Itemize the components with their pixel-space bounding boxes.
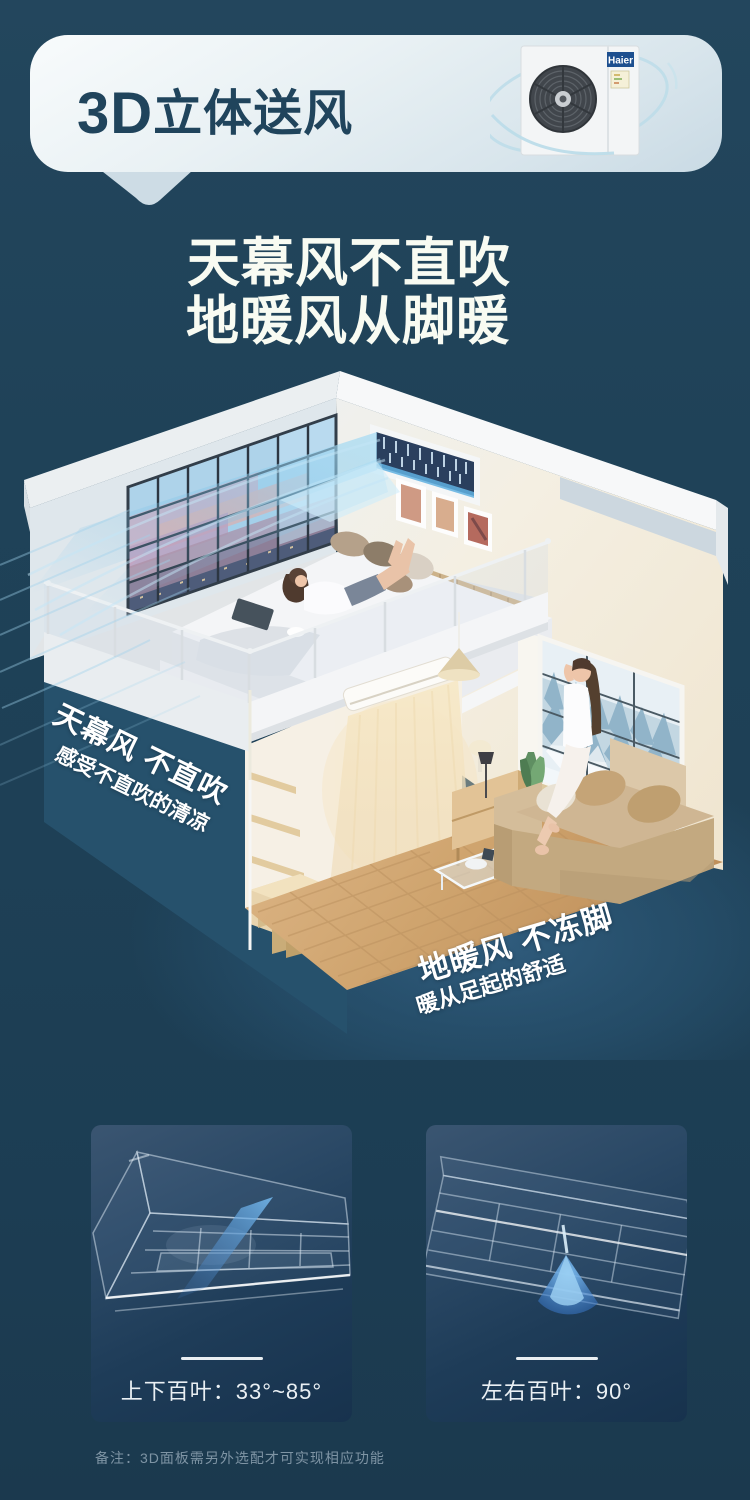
- svg-text:Haier: Haier: [608, 56, 633, 67]
